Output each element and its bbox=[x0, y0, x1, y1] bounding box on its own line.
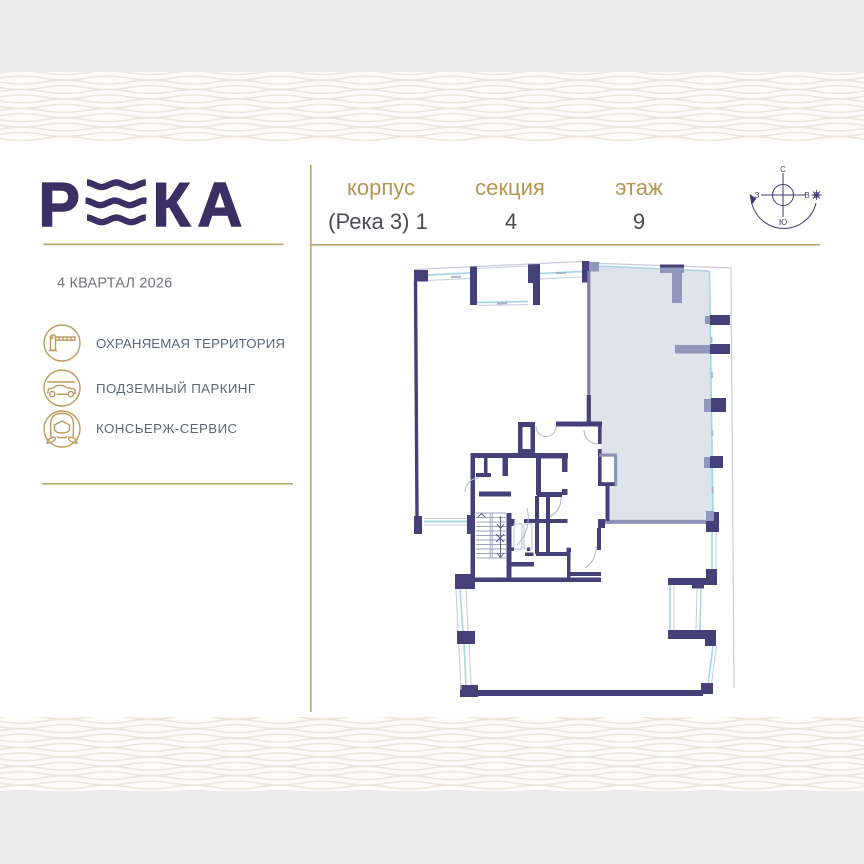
svg-text:этаж: этаж bbox=[615, 175, 663, 200]
svg-text:секция: секция bbox=[475, 175, 545, 200]
svg-text:корпус: корпус bbox=[347, 175, 415, 200]
svg-text:С: С bbox=[780, 165, 786, 174]
svg-text:Р: Р bbox=[39, 171, 80, 240]
svg-text:К: К bbox=[153, 171, 191, 240]
svg-text:Ю: Ю bbox=[779, 218, 787, 227]
svg-text:4: 4 bbox=[505, 209, 517, 234]
svg-text:В: В bbox=[804, 191, 809, 200]
svg-text:(Река 3) 1: (Река 3) 1 bbox=[328, 209, 428, 234]
svg-text:4 КВАРТАЛ 2026: 4 КВАРТАЛ 2026 bbox=[57, 276, 172, 292]
svg-text:ПОДЗЕМНЫЙ ПАРКИНГ: ПОДЗЕМНЫЙ ПАРКИНГ bbox=[96, 381, 255, 396]
svg-text:А: А bbox=[198, 171, 243, 240]
svg-text:9: 9 bbox=[633, 209, 645, 234]
svg-text:КОНСЬЕРЖ-СЕРВИС: КОНСЬЕРЖ-СЕРВИС bbox=[96, 421, 238, 436]
svg-text:ОХРАНЯЕМАЯ ТЕРРИТОРИЯ: ОХРАНЯЕМАЯ ТЕРРИТОРИЯ bbox=[96, 336, 285, 351]
